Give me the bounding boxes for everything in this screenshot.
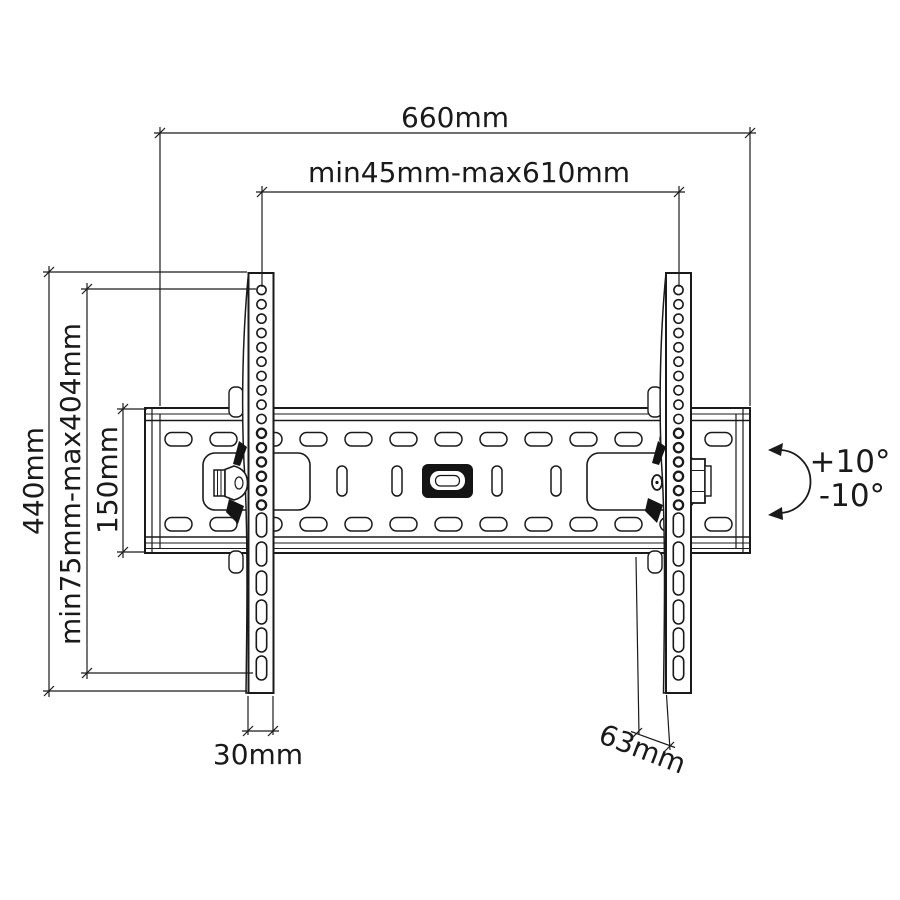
rail-slot	[435, 433, 462, 447]
rail-slot	[435, 518, 462, 532]
dimension-mount-width-range: min45mm-max610mm	[256, 156, 685, 287]
bracket-hole	[257, 371, 266, 380]
bracket-hole	[257, 457, 266, 466]
tilt-arc-arrow-icon	[779, 450, 811, 513]
bracket-hole	[674, 400, 683, 409]
bracket-hole	[257, 486, 266, 495]
bracket-hole	[257, 443, 266, 452]
rail-slot	[705, 433, 732, 447]
bracket-hole	[257, 314, 266, 323]
bracket-hole	[257, 472, 266, 481]
bracket-hole	[257, 343, 266, 352]
bracket-hole	[674, 414, 683, 423]
rail-slot	[165, 518, 192, 532]
left-knob-ridge-band	[214, 470, 225, 496]
rail-slot	[390, 433, 417, 447]
bracket-depth-label: 63mm	[594, 718, 690, 781]
rail-slot	[210, 433, 237, 447]
tilt-up-label: +10°	[810, 444, 891, 480]
bracket-hole	[257, 400, 266, 409]
bracket-hole	[257, 300, 266, 309]
rail-slot	[210, 518, 237, 532]
bracket-slot	[256, 513, 266, 537]
rail-slot	[525, 518, 552, 532]
bracket-hole	[674, 443, 683, 452]
rail-mid-slot	[551, 466, 561, 496]
right-bracket-lower-hook	[648, 551, 662, 573]
rail-slot	[345, 518, 372, 532]
left-knob-dome	[225, 466, 248, 500]
bracket-slot	[256, 571, 266, 595]
rail-slot	[345, 433, 372, 447]
bracket-slot	[673, 513, 683, 537]
bracket-hole	[674, 328, 683, 337]
rail-slot	[300, 518, 327, 532]
bracket-hole	[674, 429, 683, 438]
rail-slot	[570, 518, 597, 532]
mount-diagram-page: 660mm min45mm-max610mm 440mm min75mm-max…	[0, 0, 900, 900]
bracket-hole	[674, 314, 683, 323]
bracket-slot	[256, 628, 266, 652]
bracket-slot	[673, 600, 683, 624]
bracket-hole	[674, 457, 683, 466]
bracket-hole	[674, 386, 683, 395]
bracket-hole	[674, 472, 683, 481]
bracket-slot	[673, 571, 683, 595]
rail-slot	[570, 433, 597, 447]
bracket-hole	[257, 386, 266, 395]
bracket-hole	[674, 343, 683, 352]
bracket-slot	[673, 542, 683, 566]
bracket-hole	[257, 357, 266, 366]
bracket-hole	[257, 414, 266, 423]
dimension-bracket-foot-width: 30mm	[213, 696, 303, 771]
bracket-hole	[674, 300, 683, 309]
rail-slot	[525, 433, 552, 447]
tilt-annotation: +10° -10°	[768, 443, 890, 520]
left-bracket-upper-hook	[229, 387, 243, 417]
rail-slot	[390, 518, 417, 532]
total-width-label: 660mm	[401, 101, 509, 134]
right-bolt-shaft	[705, 466, 711, 496]
bracket-hole	[674, 371, 683, 380]
vesa-height-range-label: min75mm-max404mm	[54, 323, 87, 645]
bracket-slot	[256, 656, 266, 680]
tilt-arrow-down-head-icon	[768, 507, 783, 520]
rail-slot	[300, 433, 327, 447]
bubble-level	[422, 464, 473, 498]
tv-wall-mount-diagram: 660mm min45mm-max610mm 440mm min75mm-max…	[0, 0, 900, 900]
bracket-hole	[674, 357, 683, 366]
wall-plate-height-label: 150mm	[91, 426, 124, 534]
rail-slot	[480, 433, 507, 447]
bracket-hole	[257, 500, 266, 509]
bracket-foot-width-label: 30mm	[213, 738, 303, 771]
right-bolt-head	[691, 459, 705, 503]
bracket-hole	[674, 486, 683, 495]
rail-slot	[615, 518, 642, 532]
right-clamp-pin-center	[655, 481, 658, 484]
bracket-hole	[674, 500, 683, 509]
tilt-down-label: -10°	[819, 478, 885, 514]
tilt-arrow-up-head-icon	[768, 443, 783, 456]
bracket-height-label: 440mm	[17, 427, 50, 535]
rail-slot	[615, 433, 642, 447]
bracket-slot	[256, 600, 266, 624]
bracket-slot	[673, 656, 683, 680]
right-bracket	[660, 273, 691, 693]
rail-mid-slot	[492, 466, 502, 496]
rail-slot	[480, 518, 507, 532]
left-bracket-lower-hook	[229, 551, 243, 573]
rail-mid-slot	[392, 466, 402, 496]
dimension-wall-plate-height: 150mm	[91, 403, 147, 558]
bracket-slot	[256, 542, 266, 566]
bracket-hole	[257, 328, 266, 337]
rail-slot	[705, 518, 732, 532]
bracket-slot	[673, 628, 683, 652]
rail-mid-slot	[337, 466, 347, 496]
bracket-hole	[257, 429, 266, 438]
mount-width-range-label: min45mm-max610mm	[308, 156, 630, 189]
rail-slot	[165, 433, 192, 447]
